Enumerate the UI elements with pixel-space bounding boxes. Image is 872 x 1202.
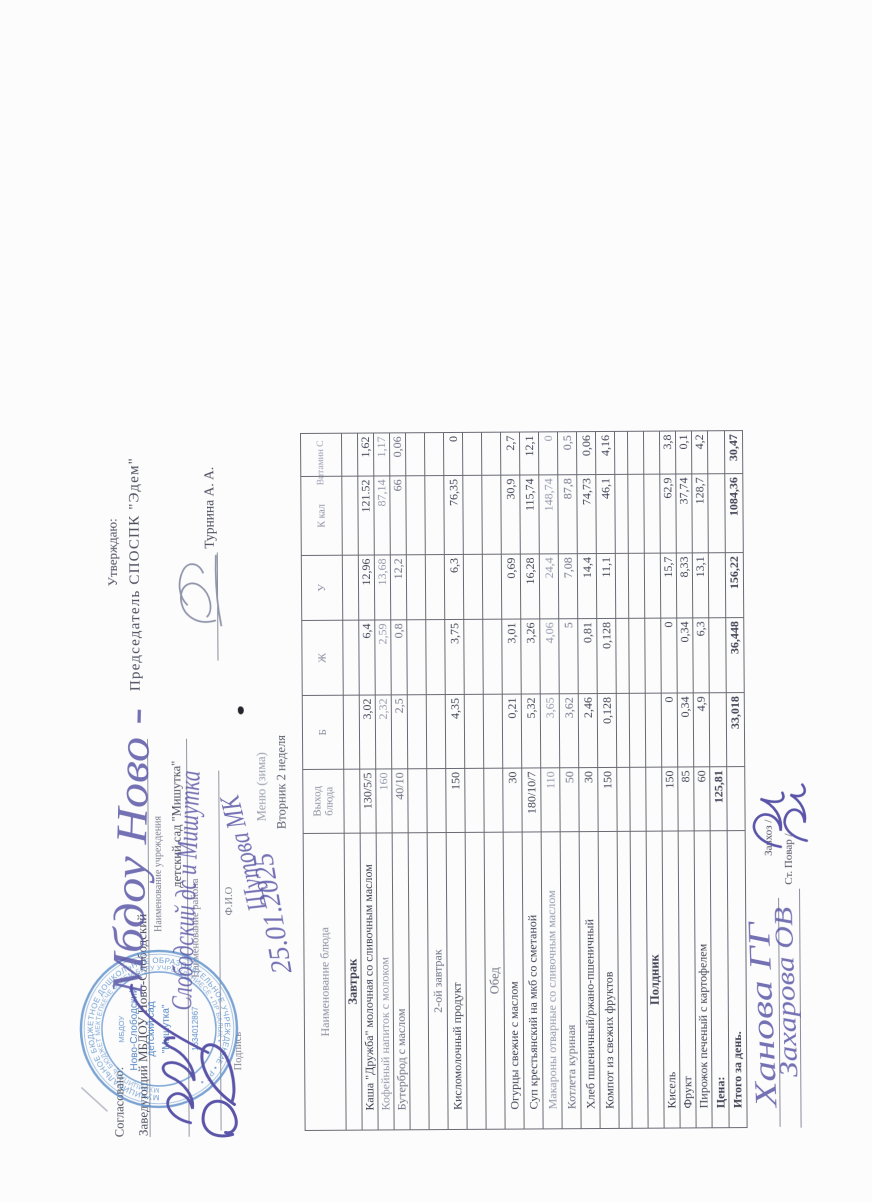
svg-text:Захарова ОВ: Захарова ОВ [769,906,804,1077]
svg-text:Слободский дс и Мишутка: Слободский дс и Мишутка [166,770,207,1011]
svg-text:Мбдоу Ново -: Мбдоу Ново - [103,707,160,996]
svg-text:25.01.2025: 25.01.2025 [247,851,298,977]
